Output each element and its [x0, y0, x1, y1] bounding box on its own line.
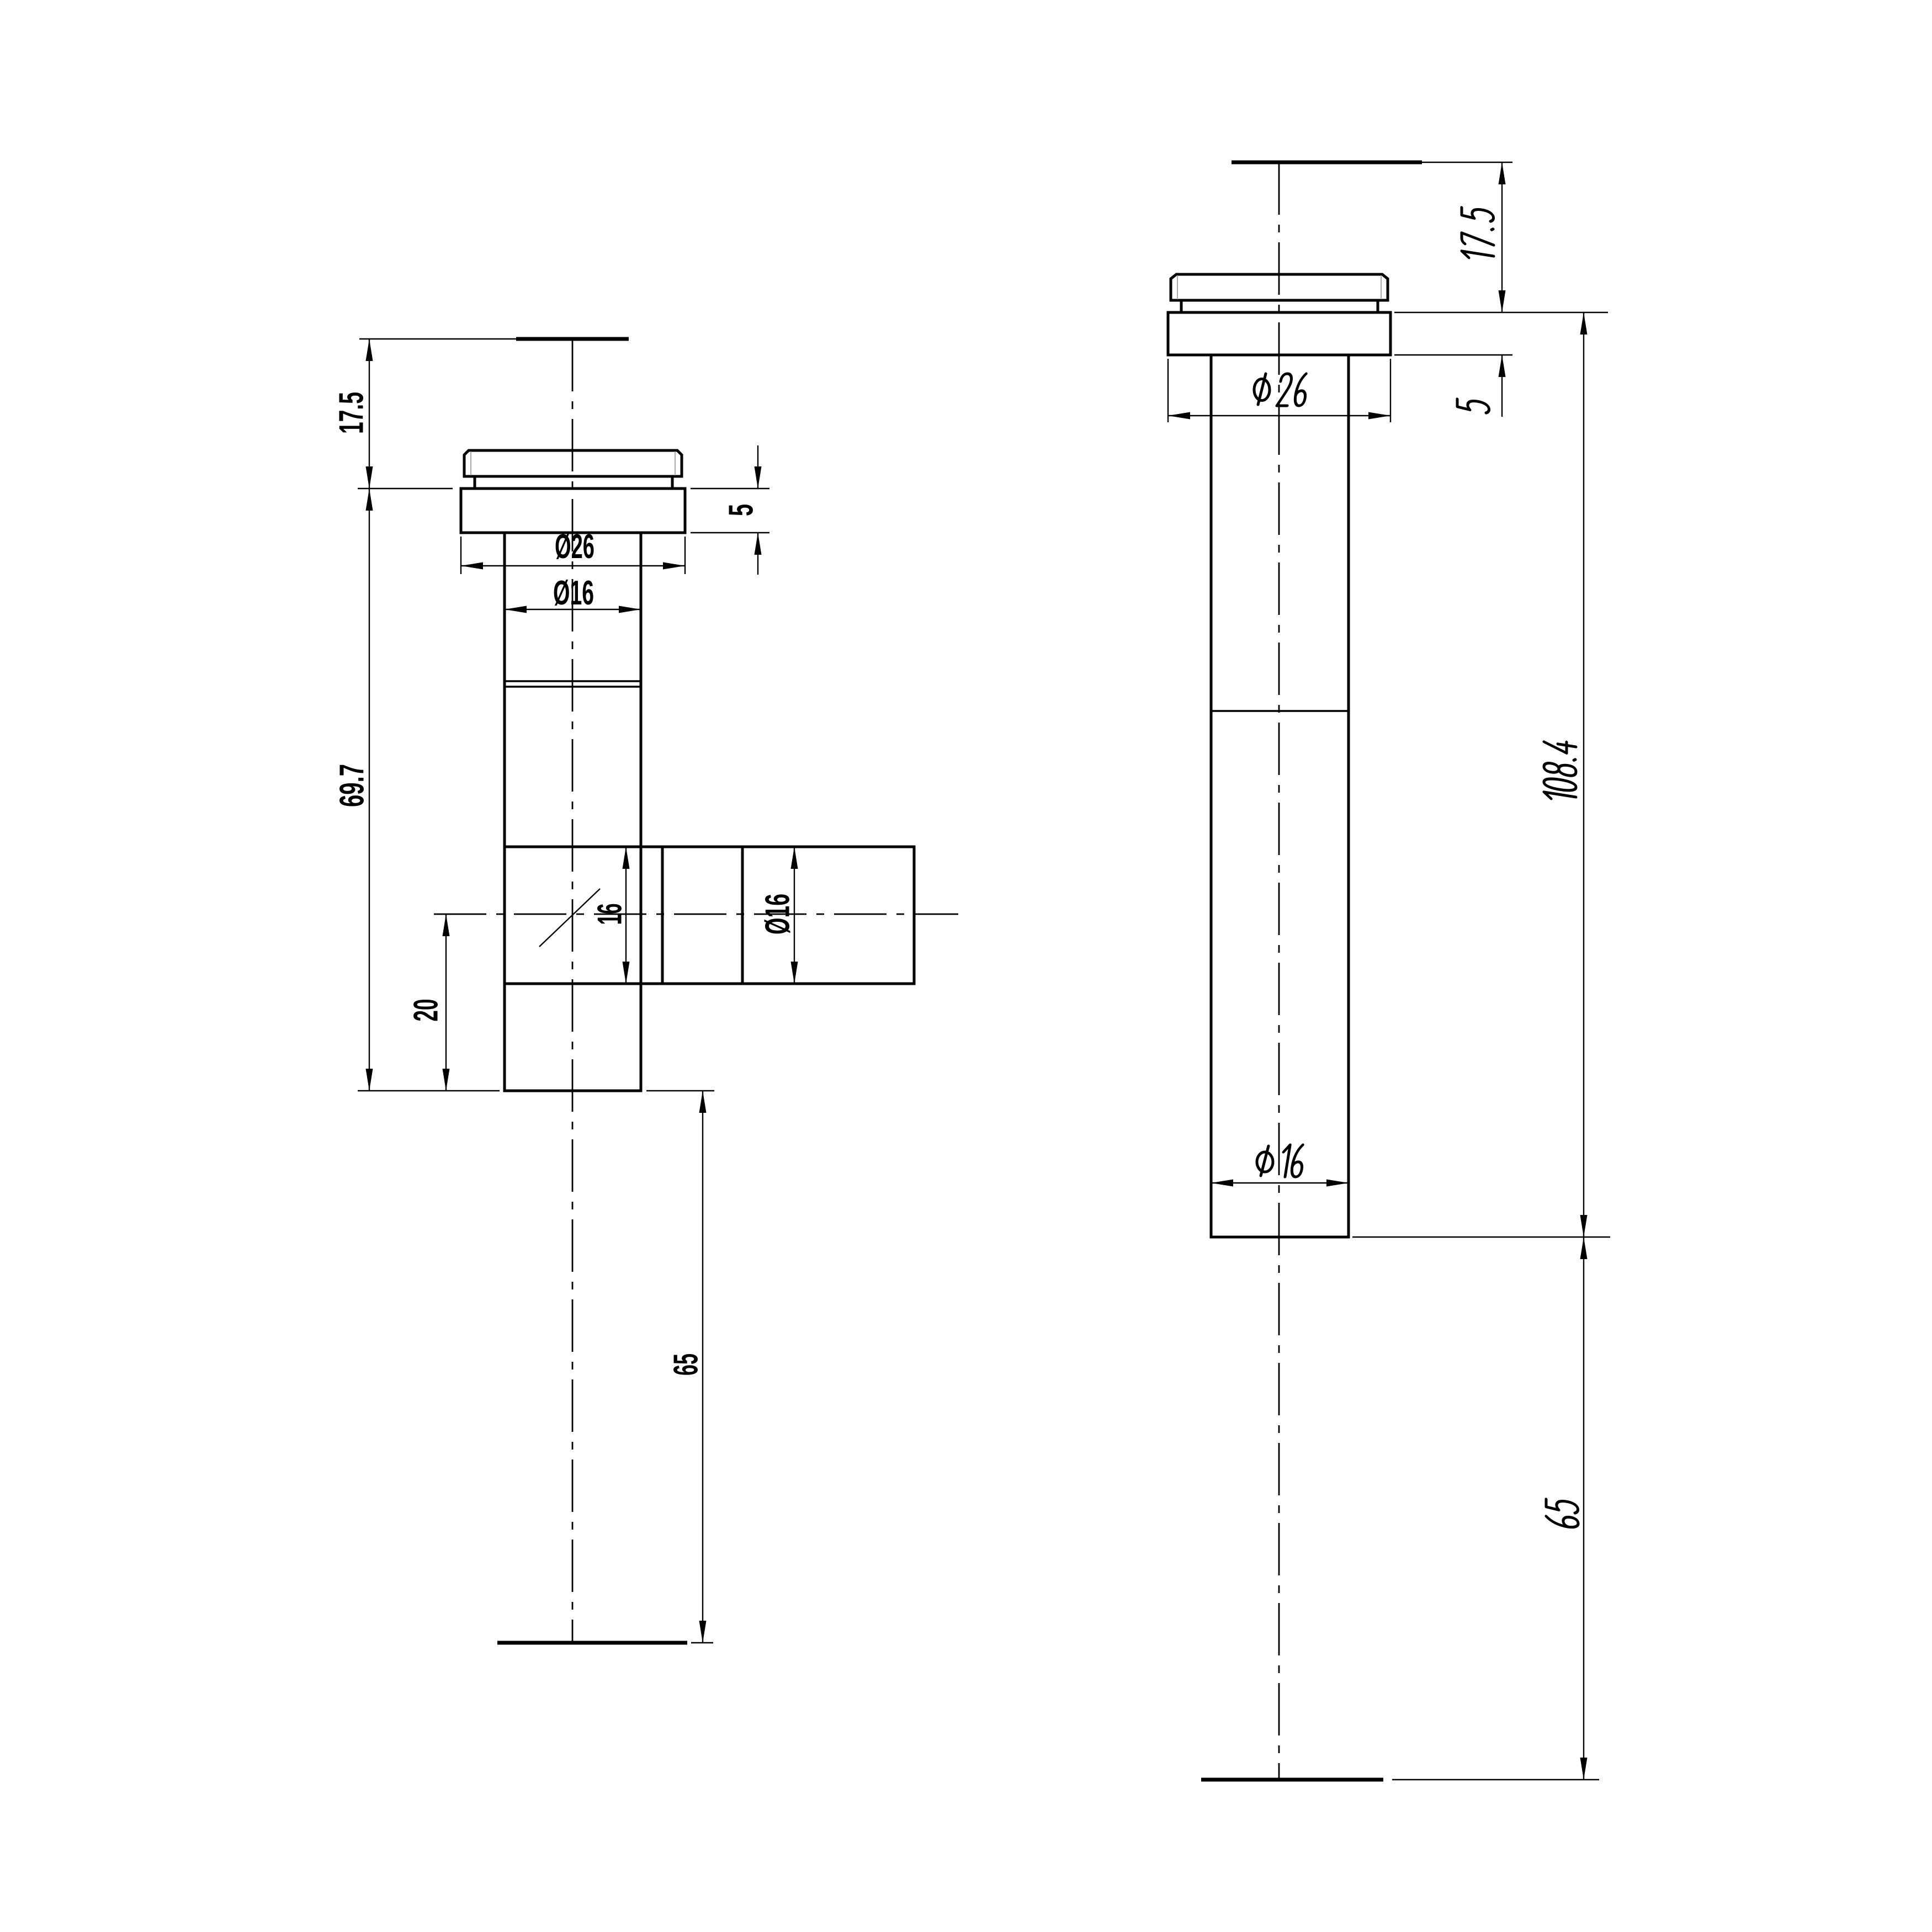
svg-text:69.7: 69.7	[333, 764, 371, 807]
svg-text:5: 5	[723, 504, 761, 516]
svg-text:Ø16: Ø16	[759, 894, 797, 935]
svg-text:65: 65	[667, 1354, 705, 1376]
svg-text:20: 20	[407, 999, 445, 1022]
svg-text:16: 16	[591, 904, 629, 925]
svg-text:Ø26: Ø26	[555, 528, 595, 566]
svg-text:Ø16: Ø16	[553, 574, 594, 612]
svg-text:17.5: 17.5	[333, 392, 371, 434]
